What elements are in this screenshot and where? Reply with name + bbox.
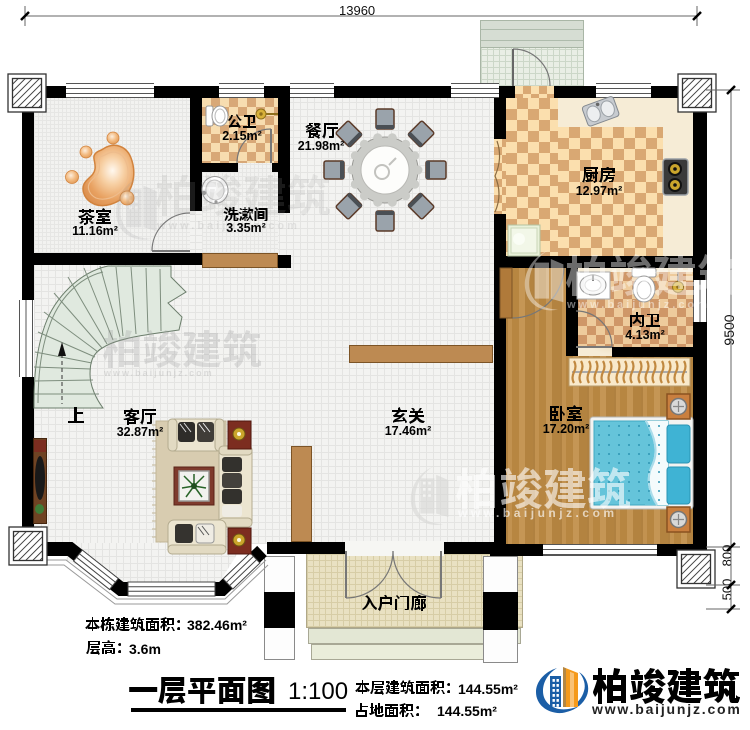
svg-text:4.13m²: 4.13m² xyxy=(625,328,665,342)
svg-text:21.98m²: 21.98m² xyxy=(298,139,345,153)
svg-text:www.baijunjz.com: www.baijunjz.com xyxy=(457,506,618,520)
svg-text:www.baijunjz.com: www.baijunjz.com xyxy=(566,299,710,311)
svg-text:32.87m²: 32.87m² xyxy=(117,425,164,439)
svg-text:www.baijunjz.com: www.baijunjz.com xyxy=(103,368,214,378)
svg-text:2.15m²: 2.15m² xyxy=(222,129,262,143)
svg-text:3.35m²: 3.35m² xyxy=(226,221,266,235)
svg-text:17.20m²: 17.20m² xyxy=(543,422,590,436)
svg-text:11.16m²: 11.16m² xyxy=(72,224,118,238)
svg-text:12.97m²: 12.97m² xyxy=(576,184,623,198)
svg-text:17.46m²: 17.46m² xyxy=(385,424,432,438)
